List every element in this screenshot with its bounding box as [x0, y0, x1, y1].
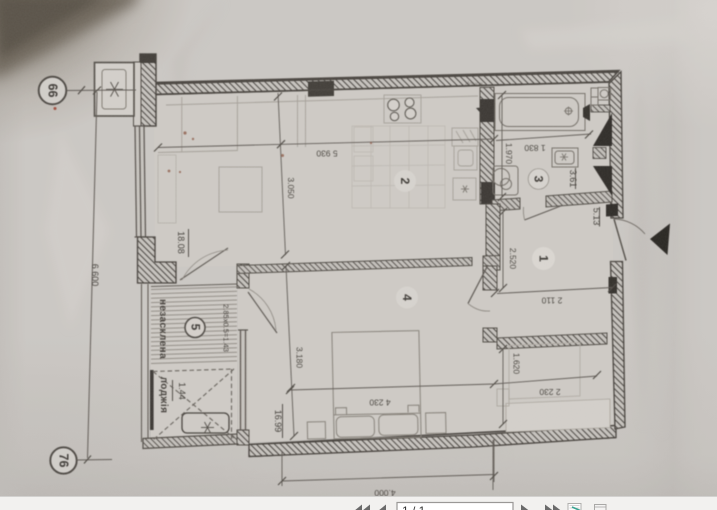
- svg-text:1 / 1: 1 / 1: [402, 504, 426, 510]
